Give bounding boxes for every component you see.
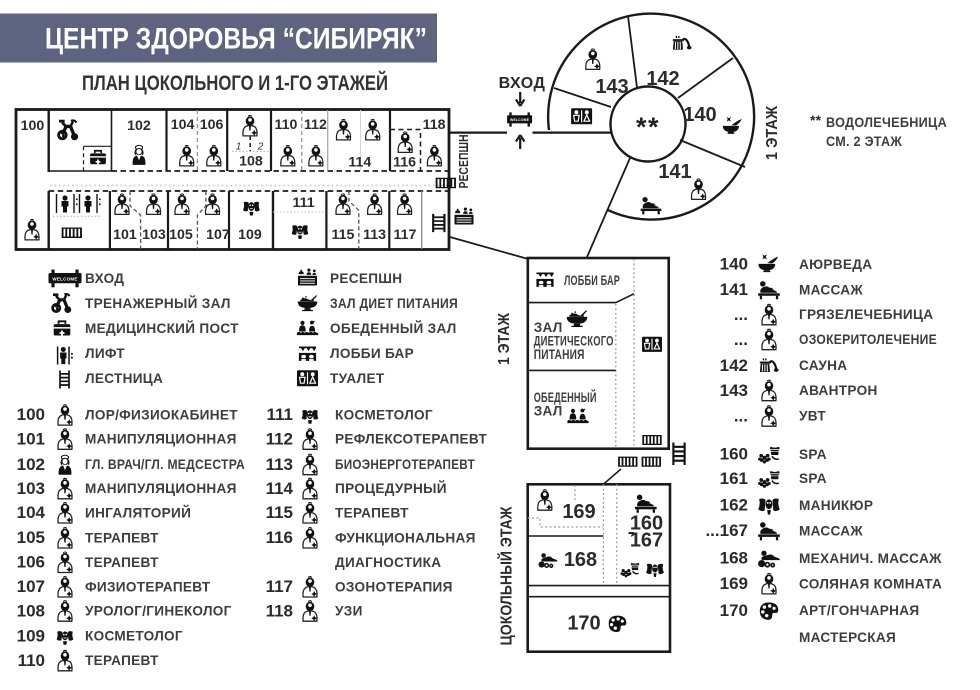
svg-text:117: 117	[394, 227, 417, 243]
svg-text:162: 162	[720, 496, 748, 515]
svg-text:ЛИФТ: ЛИФТ	[85, 346, 125, 361]
svg-text:ДИАГНОСТИКА: ДИАГНОСТИКА	[335, 555, 441, 570]
svg-text:2: 2	[257, 142, 264, 153]
svg-text:101: 101	[113, 227, 137, 243]
svg-text:МЕХАНИЧ. МАССАЖ: МЕХАНИЧ. МАССАЖ	[799, 551, 942, 566]
svg-text:118: 118	[266, 601, 293, 620]
svg-text:167: 167	[630, 530, 663, 552]
svg-text:104: 104	[171, 117, 195, 133]
svg-text:ОЗОНОТЕРАПИЯ: ОЗОНОТЕРАПИЯ	[335, 579, 453, 594]
svg-text:ЛОББИ БАР: ЛОББИ БАР	[330, 346, 414, 361]
svg-text:103: 103	[142, 227, 166, 243]
svg-text:МАНИКЮР: МАНИКЮР	[799, 498, 873, 513]
svg-text:103: 103	[17, 479, 45, 498]
svg-text:105: 105	[17, 528, 45, 547]
svg-text:ОБЕДЕННЫЙ ЗАЛ: ОБЕДЕННЫЙ ЗАЛ	[330, 321, 457, 336]
svg-text:СОЛЯНАЯ КОМНАТА: СОЛЯНАЯ КОМНАТА	[799, 576, 942, 591]
svg-text:ЗАЛ: ЗАЛ	[534, 404, 563, 419]
svg-text:115: 115	[266, 503, 293, 522]
svg-text:ЦОКОЛЬНЫЙ ЭТАЖ: ЦОКОЛЬНЫЙ ЭТАЖ	[498, 506, 516, 646]
svg-text:ОЗОКЕРИТОЛЕЧЕНИЕ: ОЗОКЕРИТОЛЕЧЕНИЕ	[799, 332, 937, 347]
svg-text:141: 141	[720, 280, 748, 299]
svg-text:ТУАЛЕТ: ТУАЛЕТ	[330, 371, 385, 386]
svg-text:ТЕРАПЕВТ: ТЕРАПЕВТ	[335, 505, 409, 520]
svg-text:ИНГАЛЯТОРИЙ: ИНГАЛЯТОРИЙ	[85, 505, 191, 520]
svg-text:168: 168	[720, 549, 748, 568]
svg-text:109: 109	[17, 626, 45, 645]
svg-text:ЛОББИ БАР: ЛОББИ БАР	[564, 273, 620, 288]
svg-text:117: 117	[266, 577, 293, 596]
svg-text:УЗИ: УЗИ	[335, 604, 363, 619]
svg-text:113: 113	[266, 455, 293, 474]
svg-text:168: 168	[564, 549, 597, 571]
svg-text:170: 170	[567, 613, 600, 635]
svg-text:100: 100	[21, 118, 45, 134]
svg-text:110: 110	[18, 651, 45, 670]
svg-text:107: 107	[17, 577, 45, 596]
svg-text:114: 114	[348, 155, 371, 171]
svg-text:ЛЕСТНИЦА: ЛЕСТНИЦА	[85, 371, 163, 386]
svg-text:ПРОЦЕДУРНЫЙ: ПРОЦЕДУРНЫЙ	[335, 481, 447, 496]
svg-text:ЗАЛ ДИЕТ ПИТАНИЯ: ЗАЛ ДИЕТ ПИТАНИЯ	[330, 296, 458, 311]
svg-text:118: 118	[423, 117, 446, 133]
svg-text:ЛОР/ФИЗИОКАБИНЕТ: ЛОР/ФИЗИОКАБИНЕТ	[85, 408, 238, 423]
svg-text:106: 106	[200, 117, 224, 133]
svg-text:170: 170	[720, 601, 748, 620]
svg-text:**: **	[636, 112, 660, 142]
svg-text:РЕФЛЕКСОТЕРАПЕВТ: РЕФЛЕКСОТЕРАПЕВТ	[335, 432, 488, 447]
svg-text:1 ЭТАЖ: 1 ЭТАЖ	[496, 313, 513, 365]
svg-text:116: 116	[393, 155, 416, 171]
svg-text:1: 1	[236, 142, 242, 153]
svg-text:**: **	[810, 112, 822, 128]
svg-text:...: ...	[734, 330, 748, 349]
svg-text:107: 107	[206, 227, 230, 243]
svg-text:110: 110	[275, 117, 298, 133]
svg-text:АРТ/ГОНЧАРНАЯ: АРТ/ГОНЧАРНАЯ	[799, 603, 919, 618]
svg-text:ТЕРАПЕВТ: ТЕРАПЕВТ	[85, 530, 159, 545]
svg-text:108: 108	[239, 154, 263, 170]
svg-text:КОСМЕТОЛОГ: КОСМЕТОЛОГ	[335, 408, 433, 423]
svg-text:МАССАЖ: МАССАЖ	[799, 523, 863, 538]
svg-text:104: 104	[17, 503, 46, 522]
svg-text:ЦЕНТР ЗДОРОВЬЯ “СИБИРЯК”: ЦЕНТР ЗДОРОВЬЯ “СИБИРЯК”	[45, 23, 427, 56]
svg-text:СМ. 2 ЭТАЖ: СМ. 2 ЭТАЖ	[826, 134, 902, 149]
svg-text:ФУНКЦИОНАЛЬНАЯ: ФУНКЦИОНАЛЬНАЯ	[335, 530, 476, 545]
svg-text:...: ...	[734, 305, 748, 324]
svg-text:102: 102	[127, 118, 151, 134]
svg-text:САУНА: САУНА	[799, 358, 847, 373]
svg-text:МЕДИЦИНСКИЙ ПОСТ: МЕДИЦИНСКИЙ ПОСТ	[85, 321, 239, 336]
svg-text:140: 140	[683, 104, 716, 126]
svg-text:МАНИПУЛЯЦИОННАЯ: МАНИПУЛЯЦИОННАЯ	[85, 432, 237, 447]
svg-text:ПИТАНИЯ: ПИТАНИЯ	[534, 347, 585, 362]
svg-text:ГРЯЗЕЛЕЧЕБНИЦА: ГРЯЗЕЛЕЧЕБНИЦА	[799, 307, 933, 322]
svg-text:101: 101	[17, 429, 45, 448]
svg-text:111: 111	[293, 195, 315, 211]
svg-text:105: 105	[169, 227, 193, 243]
svg-text:РЕСЕПШН: РЕСЕПШН	[457, 135, 471, 189]
svg-text:140: 140	[720, 255, 748, 274]
svg-text:1 ЭТАЖ: 1 ЭТАЖ	[764, 106, 781, 160]
svg-text:АВАНТРОН: АВАНТРОН	[799, 383, 878, 398]
svg-text:112: 112	[304, 117, 327, 133]
svg-text:ГЛ. ВРАЧ/ГЛ. МЕДСЕСТРА: ГЛ. ВРАЧ/ГЛ. МЕДСЕСТРА	[85, 457, 245, 472]
svg-text:ВХОД: ВХОД	[499, 75, 546, 92]
svg-text:142: 142	[646, 68, 679, 90]
svg-text:...: ...	[734, 406, 748, 425]
svg-text:ВХОД: ВХОД	[85, 271, 124, 286]
svg-text:МАССАЖ: МАССАЖ	[799, 282, 863, 297]
svg-text:169: 169	[720, 574, 748, 593]
svg-text:113: 113	[363, 227, 386, 243]
svg-text:143: 143	[595, 76, 628, 98]
svg-text:111: 111	[267, 405, 294, 424]
svg-text:141: 141	[658, 161, 691, 183]
svg-text:SPA: SPA	[799, 471, 827, 486]
svg-text:109: 109	[238, 227, 262, 243]
svg-text:161: 161	[720, 469, 748, 488]
svg-text:143: 143	[720, 381, 748, 400]
svg-text:БИОЭНЕРГОТЕРАПЕВТ: БИОЭНЕРГОТЕРАПЕВТ	[335, 457, 475, 472]
svg-text:КОСМЕТОЛОГ: КОСМЕТОЛОГ	[85, 629, 183, 644]
svg-text:160: 160	[720, 445, 748, 464]
svg-text:116: 116	[266, 528, 293, 547]
svg-text:112: 112	[266, 429, 293, 448]
svg-text:АЮРВЕДА: АЮРВЕДА	[799, 257, 872, 272]
svg-text:ТРЕНАЖЕРНЫЙ ЗАЛ: ТРЕНАЖЕРНЫЙ ЗАЛ	[85, 296, 231, 311]
svg-text:169: 169	[562, 501, 595, 523]
svg-text:РЕСЕПШН: РЕСЕПШН	[330, 271, 402, 286]
svg-text:106: 106	[17, 553, 45, 572]
svg-text:ПЛАН ЦОКОЛЬНОГО И 1-ГО ЭТАЖЕЙ: ПЛАН ЦОКОЛЬНОГО И 1-ГО ЭТАЖЕЙ	[82, 70, 388, 95]
svg-text:142: 142	[720, 356, 748, 375]
svg-text:...167: ...167	[705, 521, 748, 540]
svg-text:ТЕРАПЕВТ: ТЕРАПЕВТ	[85, 653, 159, 668]
svg-text:МАСТЕРСКАЯ: МАСТЕРСКАЯ	[799, 630, 896, 645]
svg-text:SPA: SPA	[799, 447, 827, 462]
svg-text:102: 102	[17, 455, 45, 474]
svg-text:УВТ: УВТ	[799, 409, 826, 424]
svg-text:ТЕРАПЕВТ: ТЕРАПЕВТ	[85, 555, 159, 570]
svg-text:МАНИПУЛЯЦИОННАЯ: МАНИПУЛЯЦИОННАЯ	[85, 481, 237, 496]
svg-text:ВОДОЛЕЧЕБНИЦА: ВОДОЛЕЧЕБНИЦА	[826, 115, 947, 130]
svg-text:100: 100	[17, 405, 45, 424]
svg-text:115: 115	[332, 227, 355, 243]
svg-text:ФИЗИОТЕРАПЕВТ: ФИЗИОТЕРАПЕВТ	[85, 579, 211, 594]
svg-text:114: 114	[266, 479, 294, 498]
svg-text:108: 108	[17, 601, 45, 620]
svg-text:УРОЛОГ/ГИНЕКОЛОГ: УРОЛОГ/ГИНЕКОЛОГ	[85, 604, 232, 619]
